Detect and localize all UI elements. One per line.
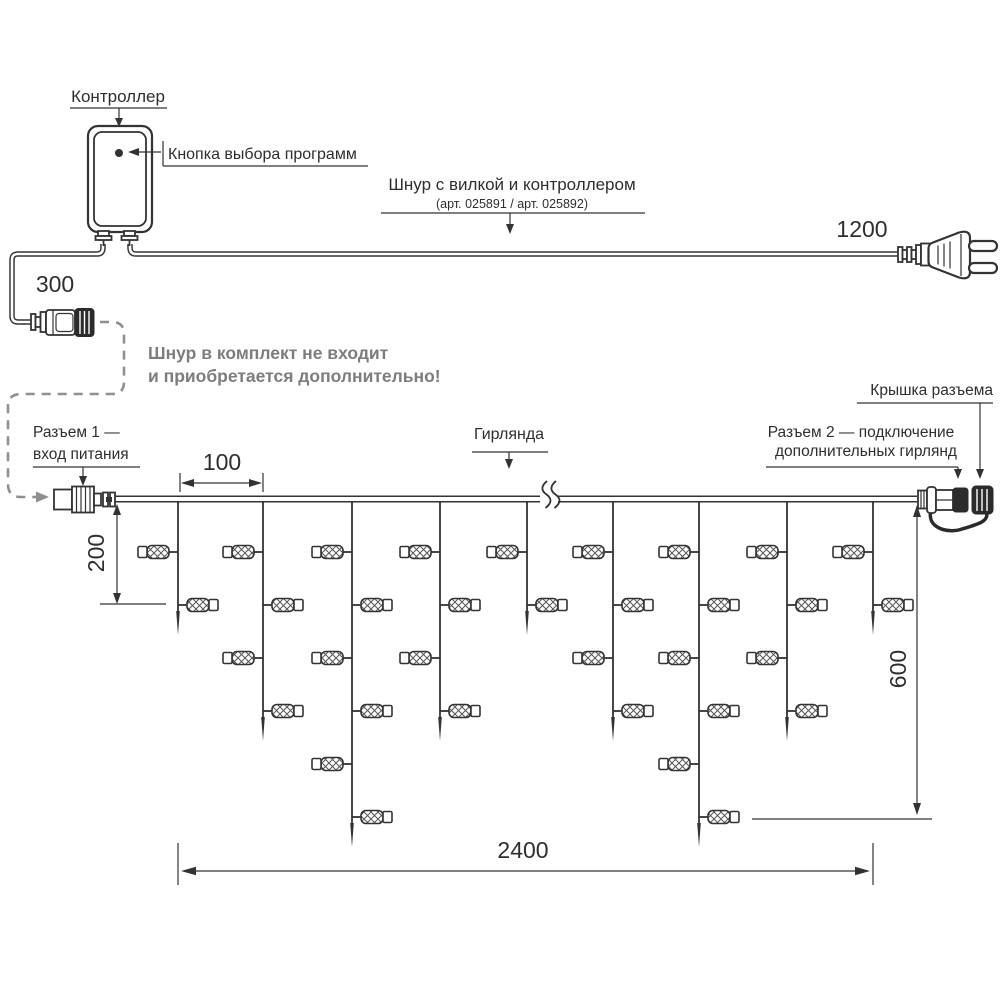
lamp-cap: [730, 812, 739, 823]
plug-prong-bottom: [969, 263, 997, 273]
label-controller: Контроллер: [70, 87, 167, 127]
svg-text:Шнур с вилкой и контроллером: Шнур с вилкой и контроллером: [388, 175, 635, 194]
lamp: [409, 652, 431, 665]
lamp-cap: [223, 547, 232, 558]
lamp: [668, 758, 690, 771]
dim-100-value: 100: [203, 449, 241, 475]
lamp-cap: [294, 600, 303, 611]
lamp-cap: [833, 547, 842, 558]
lamp: [496, 546, 518, 559]
lamp: [449, 705, 471, 718]
program-button-dot[interactable]: [115, 149, 123, 157]
lamp: [147, 546, 169, 559]
lamp: [622, 599, 644, 612]
lamp: [361, 811, 383, 824]
svg-text:Крышка разъема: Крышка разъема: [870, 382, 993, 399]
garland-drop: [312, 499, 392, 847]
lamp: [796, 705, 818, 718]
dim-600-value: 600: [885, 650, 911, 688]
lamp: [668, 546, 690, 559]
cord-to-plug: [130, 244, 898, 254]
controller-outlet-left: [96, 231, 112, 246]
lamp: [882, 599, 904, 612]
connector-1: [54, 487, 115, 513]
lamp: [756, 652, 778, 665]
lamp-cap: [471, 706, 480, 717]
garland-drop: [487, 499, 567, 635]
lamp: [272, 599, 294, 612]
lamp-cap: [558, 600, 567, 611]
lamp: [409, 546, 431, 559]
svg-text:Разъем 2 — подключение: Разъем 2 — подключение: [768, 424, 955, 441]
lamp: [708, 599, 730, 612]
lamp-cap: [747, 653, 756, 664]
lamp-cap: [818, 600, 827, 611]
lamp: [321, 546, 343, 559]
lamp-cap: [312, 653, 321, 664]
dashed-cord-path: [8, 322, 124, 503]
lamp-cap: [487, 547, 496, 558]
lamp: [536, 599, 558, 612]
svg-text:Шнур в комплект не входит: Шнур в комплект не входит: [148, 343, 389, 363]
diagram-canvas: 100 200 600 2400 300 1200 Контроллер: [0, 0, 1000, 1000]
lamp-cap: [573, 547, 582, 558]
cord-article-numbers: (арт. 025891 / арт. 025892): [436, 197, 588, 211]
lamp: [272, 705, 294, 718]
dim-200-value: 200: [83, 534, 109, 572]
lamp-cap: [644, 706, 653, 717]
lamp: [668, 652, 690, 665]
lamp-cap: [138, 547, 147, 558]
connector-2: [918, 486, 993, 531]
lamp-cap: [209, 600, 218, 611]
power-plug: [898, 232, 997, 279]
lamp: [622, 705, 644, 718]
lamp-cap: [223, 653, 232, 664]
svg-text:вход питания: вход питания: [33, 446, 129, 463]
svg-text:Гирлянда: Гирлянда: [474, 426, 544, 443]
label-connector-2: Разъем 2 — подключение дополнительных ги…: [766, 424, 962, 479]
garland-drop: [400, 499, 480, 741]
dim-2400-value: 2400: [497, 837, 548, 863]
lamp: [232, 546, 254, 559]
lamp: [321, 758, 343, 771]
garland-drop: [223, 499, 303, 741]
svg-text:дополнительных гирлянд: дополнительных гирлянд: [775, 443, 957, 460]
lamp-cap: [730, 706, 739, 717]
lamp: [708, 811, 730, 824]
dim-300-value: 300: [36, 271, 74, 297]
label-program-button: Кнопка выбора программ: [128, 141, 368, 166]
note-cord-not-included: Шнур в комплект не входит и приобретаетс…: [148, 343, 441, 386]
label-cord-with-plug: Шнур с вилкой и контроллером (арт. 02589…: [381, 175, 645, 234]
controller-box: [88, 126, 152, 246]
lamp: [796, 599, 818, 612]
label-connector-1: Разъем 1 — вход питания: [33, 424, 140, 486]
garland-drop: [659, 499, 739, 847]
lamp-cap: [747, 547, 756, 558]
dimension-drop-spacing: 100: [180, 449, 263, 492]
lamp-cap: [383, 812, 392, 823]
garland-drops: [138, 499, 913, 847]
lamp: [449, 599, 471, 612]
svg-text:Кнопка выбора программ: Кнопка выбора программ: [168, 146, 357, 163]
lamp-cap: [312, 547, 321, 558]
lamp-cap: [818, 706, 827, 717]
lamp-cap: [312, 759, 321, 770]
lamp-cap: [730, 600, 739, 611]
controller-outlet-right: [122, 231, 138, 246]
lamp-cap: [573, 653, 582, 664]
lamp-cap: [400, 547, 409, 558]
lamp-cap: [644, 600, 653, 611]
lamp: [187, 599, 209, 612]
lamp: [582, 546, 604, 559]
lamp: [708, 705, 730, 718]
svg-text:Разъем 1 —: Разъем 1 —: [33, 424, 120, 441]
svg-text:Контроллер: Контроллер: [71, 87, 165, 106]
break-symbol: [542, 481, 559, 508]
lamp: [842, 546, 864, 559]
lamp-cap: [400, 653, 409, 664]
lamp-cap: [383, 600, 392, 611]
svg-text:и приобретается дополнительно!: и приобретается дополнительно!: [148, 366, 441, 386]
plug-prong-top: [969, 241, 997, 251]
dim-1200-value: 1200: [836, 216, 887, 242]
lamp-cap: [471, 600, 480, 611]
garland-drop: [747, 499, 827, 741]
lamp-cap: [904, 600, 913, 611]
lamp-cap: [659, 759, 668, 770]
lamp-cap: [659, 547, 668, 558]
lamp: [321, 652, 343, 665]
label-garland: Гирлянда: [472, 426, 548, 469]
garland-drop: [138, 499, 218, 635]
lamp: [361, 599, 383, 612]
lamp: [232, 652, 254, 665]
lamp: [361, 705, 383, 718]
lamp-cap: [294, 706, 303, 717]
lamp: [756, 546, 778, 559]
product-scheme: 100 200 600 2400 300 1200 Контроллер: [0, 0, 1000, 1000]
lamp: [582, 652, 604, 665]
garland-drop: [833, 499, 913, 635]
lamp-cap: [383, 706, 392, 717]
cord-end-connector: [31, 309, 94, 337]
dimension-garland-length: 2400: [178, 837, 873, 885]
garland-drop: [573, 499, 653, 741]
lamp-cap: [659, 653, 668, 664]
